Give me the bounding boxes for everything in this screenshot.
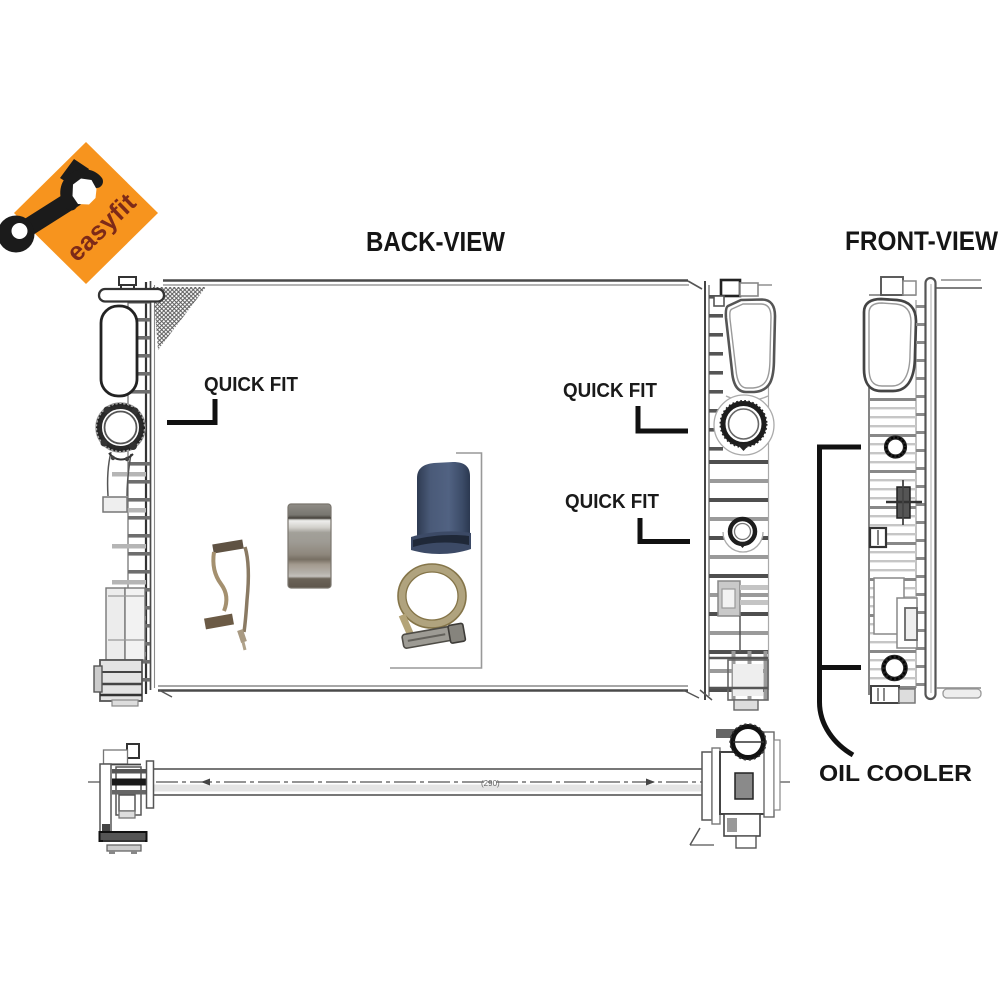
svg-text:(290): (290) (481, 779, 500, 788)
svg-text:QUICK FIT: QUICK FIT (565, 491, 659, 513)
svg-text:BACK-VIEW: BACK-VIEW (366, 226, 505, 257)
svg-text:FRONT-VIEW: FRONT-VIEW (845, 226, 998, 256)
svg-text:QUICK FIT: QUICK FIT (204, 374, 298, 396)
svg-text:OIL COOLER: OIL COOLER (819, 760, 972, 786)
svg-text:QUICK FIT: QUICK FIT (563, 380, 657, 402)
